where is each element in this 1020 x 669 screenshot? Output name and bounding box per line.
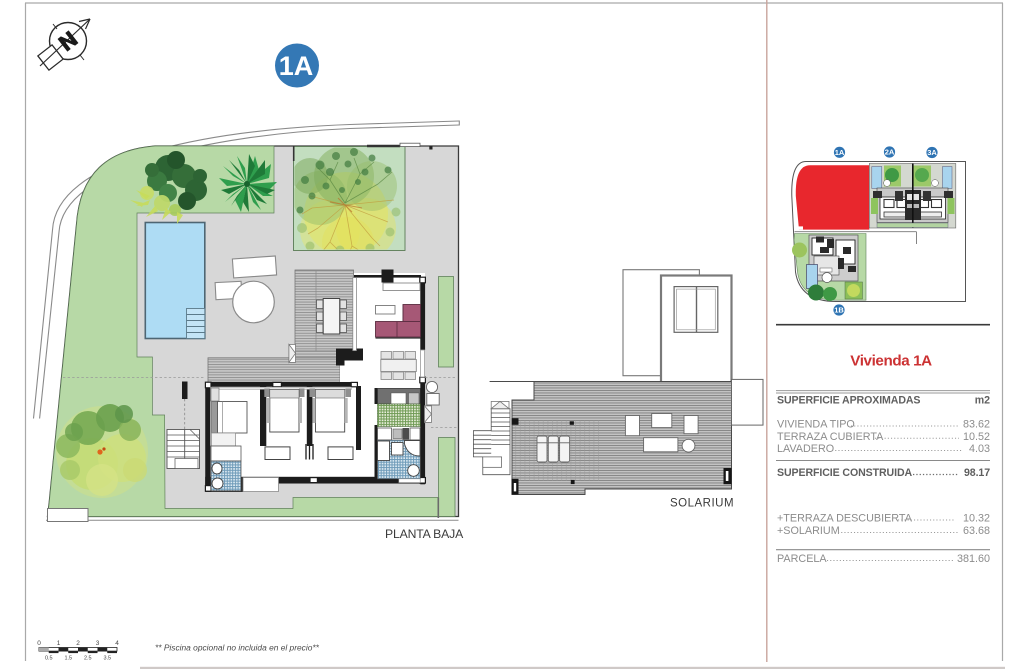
svg-text:83.62: 83.62 [963, 419, 990, 431]
svg-text:10.32: 10.32 [963, 513, 990, 525]
svg-text:+SOLARIUM: +SOLARIUM [777, 525, 840, 537]
svg-text:0.5: 0.5 [45, 656, 53, 662]
svg-text:1A: 1A [279, 51, 314, 81]
svg-text:SOLARIUM: SOLARIUM [670, 498, 734, 510]
svg-text:3.5: 3.5 [103, 656, 111, 662]
svg-text:m2: m2 [975, 395, 990, 407]
svg-text:SUPERFICIE APROXIMADAS: SUPERFICIE APROXIMADAS [777, 395, 920, 407]
svg-text:** Piscina opcional no incluid: ** Piscina opcional no incluida en el pr… [155, 643, 320, 653]
svg-text:1B: 1B [834, 306, 844, 315]
svg-text:4.03: 4.03 [969, 443, 990, 455]
svg-text:1: 1 [57, 640, 61, 647]
svg-text:63.68: 63.68 [963, 525, 990, 537]
svg-text:2A: 2A [885, 148, 895, 157]
svg-text:0: 0 [37, 640, 41, 647]
svg-text:10.52: 10.52 [963, 431, 990, 443]
svg-text:3: 3 [96, 640, 100, 647]
svg-text:TERRAZA CUBIERTA: TERRAZA CUBIERTA [777, 431, 884, 443]
svg-text:3A: 3A [927, 148, 937, 157]
svg-text:SUPERFICIE CONSTRUIDA: SUPERFICIE CONSTRUIDA [777, 467, 912, 479]
svg-text:LAVADERO: LAVADERO [777, 443, 834, 455]
svg-text:1.5: 1.5 [64, 656, 72, 662]
svg-text:1A: 1A [835, 148, 845, 157]
svg-text:381.60: 381.60 [957, 553, 990, 565]
svg-text:2: 2 [76, 640, 80, 647]
svg-text:2.5: 2.5 [84, 656, 92, 662]
svg-text:+TERRAZA DESCUBIERTA: +TERRAZA DESCUBIERTA [777, 513, 913, 525]
svg-text:PARCELA: PARCELA [777, 553, 827, 565]
svg-text:Vivienda 1A: Vivienda 1A [850, 353, 932, 370]
svg-text:VIVIENDA TIPO: VIVIENDA TIPO [777, 419, 855, 431]
svg-text:98.17: 98.17 [964, 467, 990, 479]
svg-text:4: 4 [115, 640, 119, 647]
svg-text:PLANTA BAJA: PLANTA BAJA [385, 527, 464, 541]
